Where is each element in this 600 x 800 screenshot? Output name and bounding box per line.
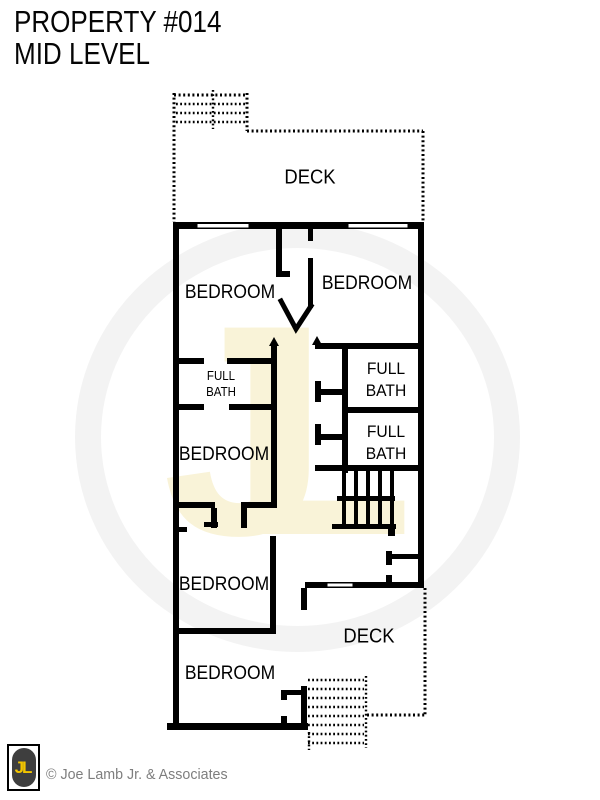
page-title-line1: PROPERTY #014 <box>14 6 221 38</box>
label-line: FULL <box>366 421 407 443</box>
label-full-bath-right-upper: FULL BATH <box>366 358 407 402</box>
label-line: BATH <box>206 384 236 400</box>
label-bedroom-lower-left: BEDROOM <box>179 574 269 596</box>
joe-lamb-logo: JL <box>7 744 40 791</box>
label-line: BATH <box>366 380 407 402</box>
label-full-bath-right-lower: FULL BATH <box>366 421 407 465</box>
label-bedroom-mid-left: BEDROOM <box>179 444 269 466</box>
label-bedroom-top-left: BEDROOM <box>185 282 275 304</box>
floor-plan-drawing <box>0 0 600 800</box>
floor-plan-page: JL PROPERTY #014 MID LEVEL <box>0 0 600 800</box>
label-line: BATH <box>366 443 407 465</box>
copyright-credit: © Joe Lamb Jr. & Associates <box>46 766 228 783</box>
label-full-bath-left: FULL BATH <box>206 368 236 400</box>
logo-monogram: JL <box>15 758 31 778</box>
bottom-deck-stairs <box>308 676 366 750</box>
page-title: PROPERTY #014 MID LEVEL <box>14 6 221 70</box>
label-line: FULL <box>206 368 236 384</box>
interior-staircase <box>332 471 396 536</box>
door-pointer-marks <box>269 301 322 346</box>
logo-oval: JL <box>12 748 36 787</box>
label-bedroom-top-right: BEDROOM <box>322 273 412 295</box>
label-line: FULL <box>366 358 407 380</box>
page-title-line2: MID LEVEL <box>14 38 221 70</box>
bottom-deck-railing <box>367 588 425 715</box>
label-bedroom-bottom: BEDROOM <box>185 663 275 685</box>
label-deck-top: DECK <box>284 167 335 190</box>
label-deck-bottom: DECK <box>343 626 394 649</box>
